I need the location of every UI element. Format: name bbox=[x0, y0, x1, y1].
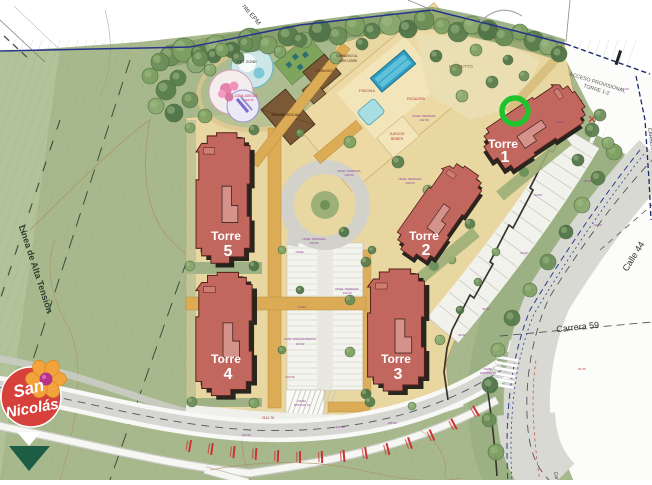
svg-text:GIMNASIO: GIMNASIO bbox=[315, 69, 333, 73]
svg-text:101.50: 101.50 bbox=[335, 425, 345, 429]
svg-text:65.00: 65.00 bbox=[584, 179, 592, 183]
svg-text:94.00: 94.00 bbox=[594, 223, 602, 227]
svg-text:SOTANO 02: SOTANO 02 bbox=[480, 371, 497, 375]
svg-text:2: 2 bbox=[422, 242, 431, 259]
svg-text:95.00: 95.00 bbox=[482, 307, 490, 311]
svg-text:102.50: 102.50 bbox=[419, 118, 429, 122]
svg-text:NIVEL: NIVEL bbox=[296, 250, 305, 254]
svg-text:103.50: 103.50 bbox=[344, 173, 354, 177]
svg-text:PISCINA: PISCINA bbox=[359, 88, 375, 93]
svg-text:Torre: Torre bbox=[211, 352, 241, 366]
svg-text:65.00: 65.00 bbox=[556, 120, 564, 124]
svg-text:102.00: 102.00 bbox=[342, 291, 352, 295]
svg-text:106.50: 106.50 bbox=[387, 421, 397, 425]
svg-text:103.50: 103.50 bbox=[285, 375, 295, 379]
svg-text:NIVEL PARQUEADEROS: NIVEL PARQUEADEROS bbox=[284, 337, 316, 341]
svg-text:SALON SOCIAL: SALON SOCIAL bbox=[271, 112, 301, 117]
svg-text:103.50: 103.50 bbox=[309, 241, 319, 245]
svg-text:Torre: Torre bbox=[381, 352, 411, 366]
svg-text:101.50: 101.50 bbox=[241, 433, 251, 437]
svg-text:64.00: 64.00 bbox=[621, 87, 629, 91]
svg-text:Torre: Torre bbox=[211, 229, 241, 243]
svg-text:Carre: Carre bbox=[552, 471, 560, 480]
svg-text:AIRE LIBRE: AIRE LIBRE bbox=[339, 59, 358, 63]
svg-text:SOTANO 01: SOTANO 01 bbox=[294, 403, 311, 407]
svg-text:ESCALERA: ESCALERA bbox=[407, 97, 426, 101]
svg-text:PET ZONE: PET ZONE bbox=[237, 59, 257, 64]
svg-text:93.00: 93.00 bbox=[520, 251, 528, 255]
svg-text:91.00: 91.00 bbox=[578, 367, 586, 371]
svg-text:Torre: Torre bbox=[409, 229, 439, 243]
svg-text:BEBES: BEBES bbox=[391, 137, 404, 141]
svg-text:JUEGOS: JUEGOS bbox=[390, 132, 405, 136]
svg-text:92.00: 92.00 bbox=[534, 193, 542, 197]
svg-text:103.50: 103.50 bbox=[296, 342, 305, 346]
svg-text:+104.30: +104.30 bbox=[243, 98, 254, 102]
svg-text:103.00: 103.00 bbox=[405, 181, 415, 185]
svg-text:NIVEL: NIVEL bbox=[298, 305, 307, 309]
svg-text:5: 5 bbox=[224, 243, 233, 260]
svg-text:GIMNASIO AL: GIMNASIO AL bbox=[336, 54, 358, 58]
svg-text:4: 4 bbox=[224, 366, 233, 383]
svg-text:94.00: 94.00 bbox=[458, 333, 466, 337]
svg-text:2141.76: 2141.76 bbox=[262, 416, 274, 420]
svg-text:3: 3 bbox=[394, 366, 403, 383]
svg-text:1: 1 bbox=[501, 149, 510, 166]
svg-text:PALMETTO: PALMETTO bbox=[449, 64, 473, 69]
